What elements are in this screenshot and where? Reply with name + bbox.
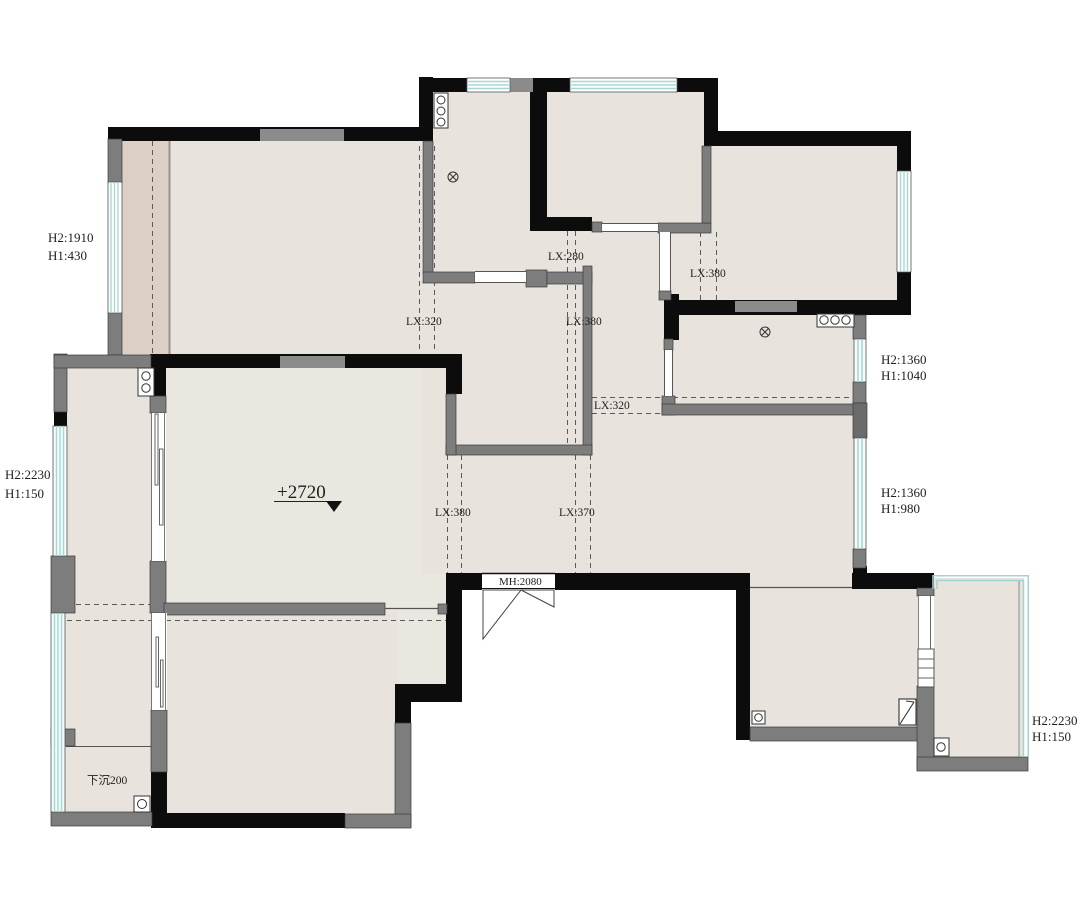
svg-text:LX:320: LX:320 bbox=[594, 400, 630, 412]
svg-text:LX:370: LX:370 bbox=[559, 507, 595, 519]
svg-text:H2:1910: H2:1910 bbox=[48, 230, 94, 245]
svg-text:LX:380: LX:380 bbox=[566, 316, 602, 328]
svg-text:H2:2230: H2:2230 bbox=[5, 467, 51, 482]
svg-text:H1:1040: H1:1040 bbox=[881, 368, 927, 383]
svg-text:H1:430: H1:430 bbox=[48, 248, 87, 263]
svg-text:LX:380: LX:380 bbox=[435, 507, 471, 519]
svg-text:MH:2080: MH:2080 bbox=[499, 576, 542, 588]
svg-text:下沉200: 下沉200 bbox=[87, 774, 127, 787]
svg-text:H2:1360: H2:1360 bbox=[881, 485, 927, 500]
svg-text:LX:280: LX:280 bbox=[548, 251, 584, 263]
svg-text:H2:2230: H2:2230 bbox=[1032, 713, 1078, 728]
svg-text:H1:980: H1:980 bbox=[881, 501, 920, 516]
svg-text:H1:150: H1:150 bbox=[5, 486, 44, 501]
svg-text:+2720: +2720 bbox=[277, 482, 326, 503]
svg-text:LX:380: LX:380 bbox=[690, 268, 726, 280]
svg-text:LX:320: LX:320 bbox=[406, 316, 442, 328]
svg-text:H2:1360: H2:1360 bbox=[881, 352, 927, 367]
svg-text:H1:150: H1:150 bbox=[1032, 729, 1071, 744]
